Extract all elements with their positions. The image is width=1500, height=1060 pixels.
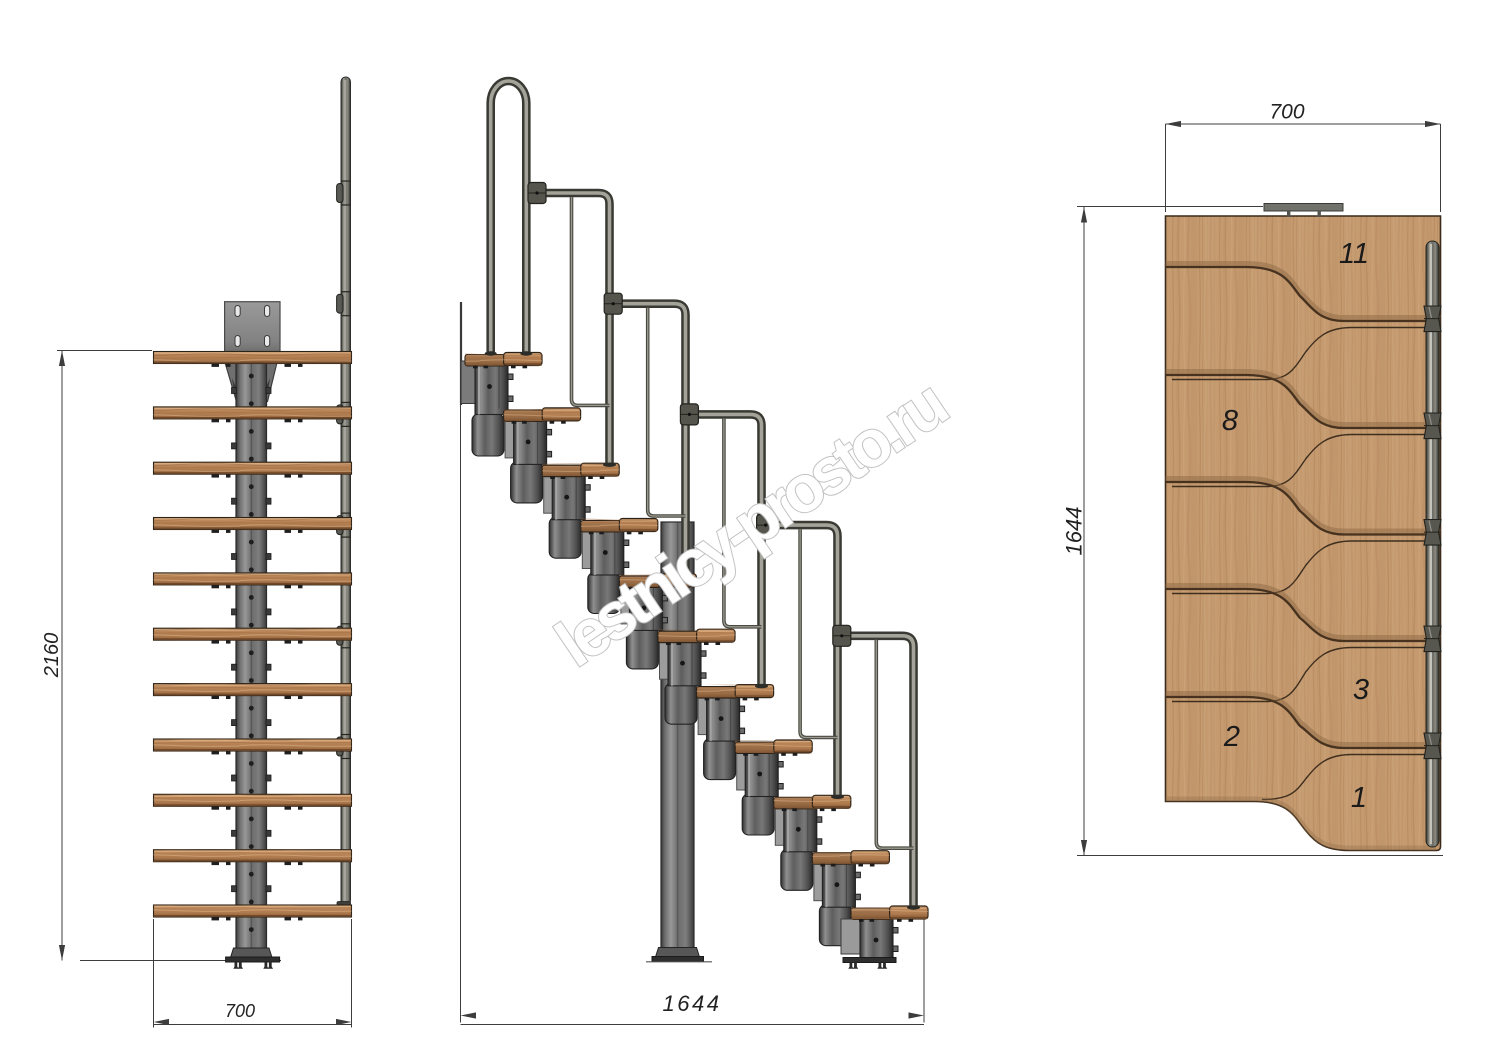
svg-text:1: 1: [1351, 782, 1367, 814]
svg-text:700: 700: [225, 1001, 255, 1021]
svg-text:700: 700: [1269, 101, 1304, 124]
svg-text:2160: 2160: [41, 633, 63, 679]
svg-text:1644: 1644: [663, 991, 722, 1016]
svg-text:3: 3: [1353, 674, 1369, 706]
svg-text:11: 11: [1339, 238, 1369, 270]
svg-text:8: 8: [1222, 405, 1238, 437]
svg-text:2: 2: [1223, 721, 1240, 753]
svg-text:1644: 1644: [1062, 507, 1087, 556]
